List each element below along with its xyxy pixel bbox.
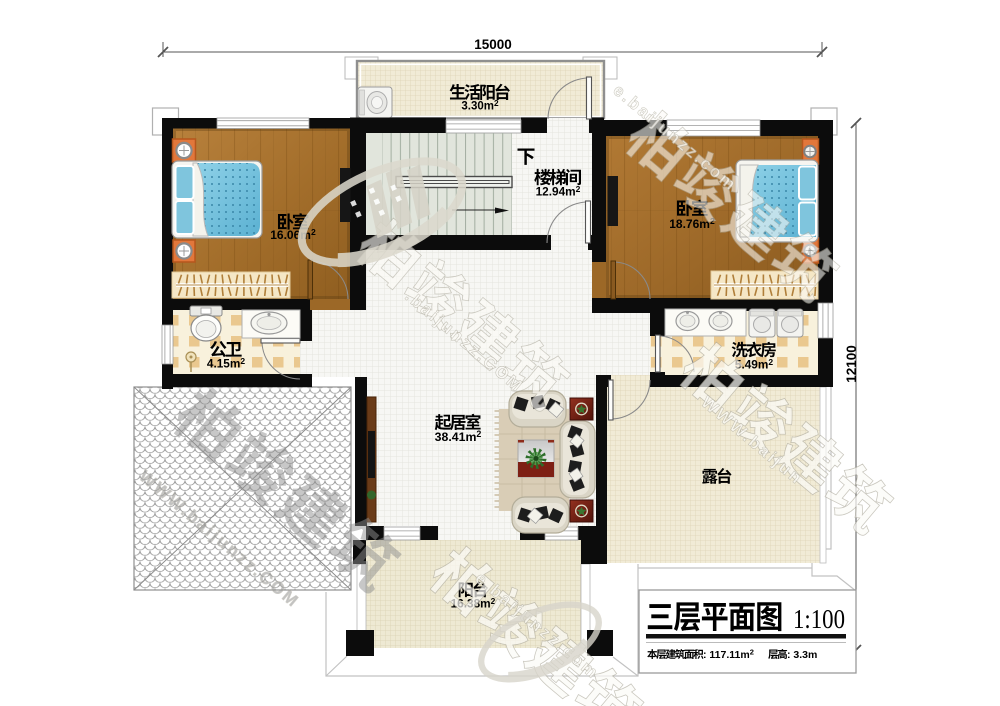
svg-text:38.41m2: 38.41m2 [435, 429, 482, 444]
svg-text:1:100: 1:100 [793, 604, 845, 634]
svg-text:12.94m2: 12.94m2 [536, 184, 581, 199]
svg-text:: 117.11m2: : 117.11m2 [703, 648, 754, 662]
svg-text:16.06m2: 16.06m2 [270, 227, 316, 242]
svg-text:3.30m2: 3.30m2 [461, 98, 499, 113]
svg-text:4.15m2: 4.15m2 [207, 356, 245, 371]
svg-text:15000: 15000 [474, 37, 512, 52]
svg-text:12100: 12100 [844, 345, 859, 383]
svg-text:: 3.3m: : 3.3m [787, 649, 817, 661]
